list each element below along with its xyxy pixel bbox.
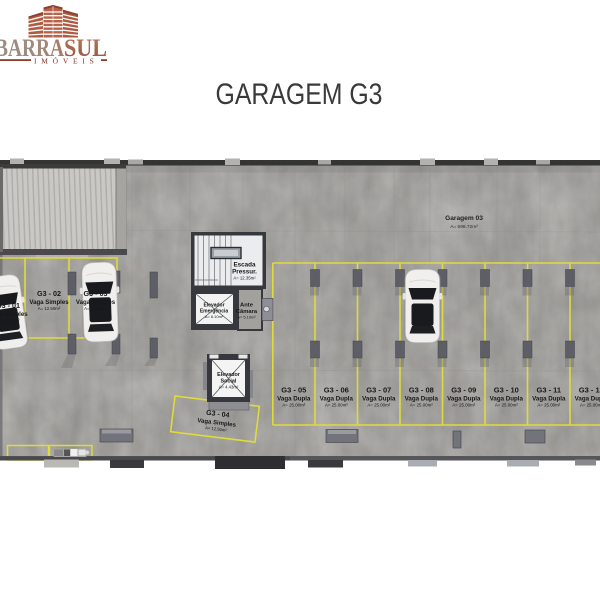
svg-text:Vaga Dupla: Vaga Dupla: [405, 396, 439, 403]
svg-text:A= 25.00m²: A= 25.00m²: [452, 403, 475, 408]
svg-text:Vaga Simples: Vaga Simples: [0, 311, 28, 318]
svg-text:A= 25.00m²: A= 25.00m²: [282, 403, 305, 408]
svg-text:G3 - 02: G3 - 02: [37, 289, 61, 298]
svg-text:G3 - 12: G3 - 12: [579, 386, 600, 395]
svg-text:G3 - 07: G3 - 07: [366, 386, 391, 395]
svg-text:A= 698.72m²: A= 698.72m²: [450, 224, 478, 230]
svg-text:A= 25.00m²: A= 25.00m²: [580, 403, 600, 408]
svg-text:Vaga Simples: Vaga Simples: [76, 299, 116, 306]
svg-text:A= 25.00m²: A= 25.00m²: [495, 403, 518, 408]
svg-text:A= 25.00m²: A= 25.00m²: [367, 403, 390, 408]
svg-text:G3 - 08: G3 - 08: [409, 386, 434, 395]
svg-text:Vaga Dupla: Vaga Dupla: [320, 396, 354, 403]
svg-text:G3 - 09: G3 - 09: [451, 386, 476, 395]
svg-text:A= 25.00m²: A= 25.00m²: [410, 403, 433, 408]
svg-text:A= 12.50m²: A= 12.50m²: [0, 318, 20, 323]
svg-text:Vaga Dupla: Vaga Dupla: [277, 396, 311, 403]
svg-text:Ante: Ante: [240, 303, 254, 309]
svg-text:A= 6.10m²: A= 6.10m²: [205, 314, 224, 319]
svg-text:GARAGEM G3: GARAGEM G3: [216, 78, 383, 111]
svg-text:A= 12.50m²: A= 12.50m²: [38, 306, 61, 311]
svg-text:G3 - 05: G3 - 05: [281, 386, 306, 395]
svg-text:Vaga Dupla: Vaga Dupla: [447, 396, 481, 403]
svg-text:Vaga Dupla: Vaga Dupla: [490, 396, 524, 403]
svg-text:Vaga Simples: Vaga Simples: [29, 299, 69, 306]
svg-text:G3 - 01: G3 - 01: [0, 301, 20, 310]
svg-text:A= 25.00m²: A= 25.00m²: [325, 403, 348, 408]
svg-text:Elevador: Elevador: [217, 372, 241, 378]
svg-text:G3 - 11: G3 - 11: [536, 386, 561, 395]
svg-text:Vaga Dupla: Vaga Dupla: [532, 396, 566, 403]
svg-text:Vaga Dupla: Vaga Dupla: [362, 396, 396, 403]
svg-text:G3 - 10: G3 - 10: [494, 386, 519, 395]
svg-text:Vaga Dupla: Vaga Dupla: [575, 396, 600, 403]
svg-text:Pressur.: Pressur.: [232, 268, 257, 275]
svg-text:A= 25.00m²: A= 25.00m²: [537, 403, 560, 408]
svg-text:A= 12.50m²: A= 12.50m²: [84, 306, 107, 311]
svg-text:IMÓVEIS: IMÓVEIS: [34, 56, 98, 66]
svg-text:A= 4.43m²: A= 4.43m²: [219, 385, 239, 390]
svg-text:G3 - 06: G3 - 06: [324, 386, 349, 395]
svg-text:A= 12.35m²: A= 12.35m²: [233, 275, 256, 280]
svg-text:A= 5.10m²: A= 5.10m²: [237, 315, 256, 320]
svg-text:Garagem 03: Garagem 03: [445, 215, 483, 222]
svg-text:G3 - 03: G3 - 03: [84, 289, 108, 298]
